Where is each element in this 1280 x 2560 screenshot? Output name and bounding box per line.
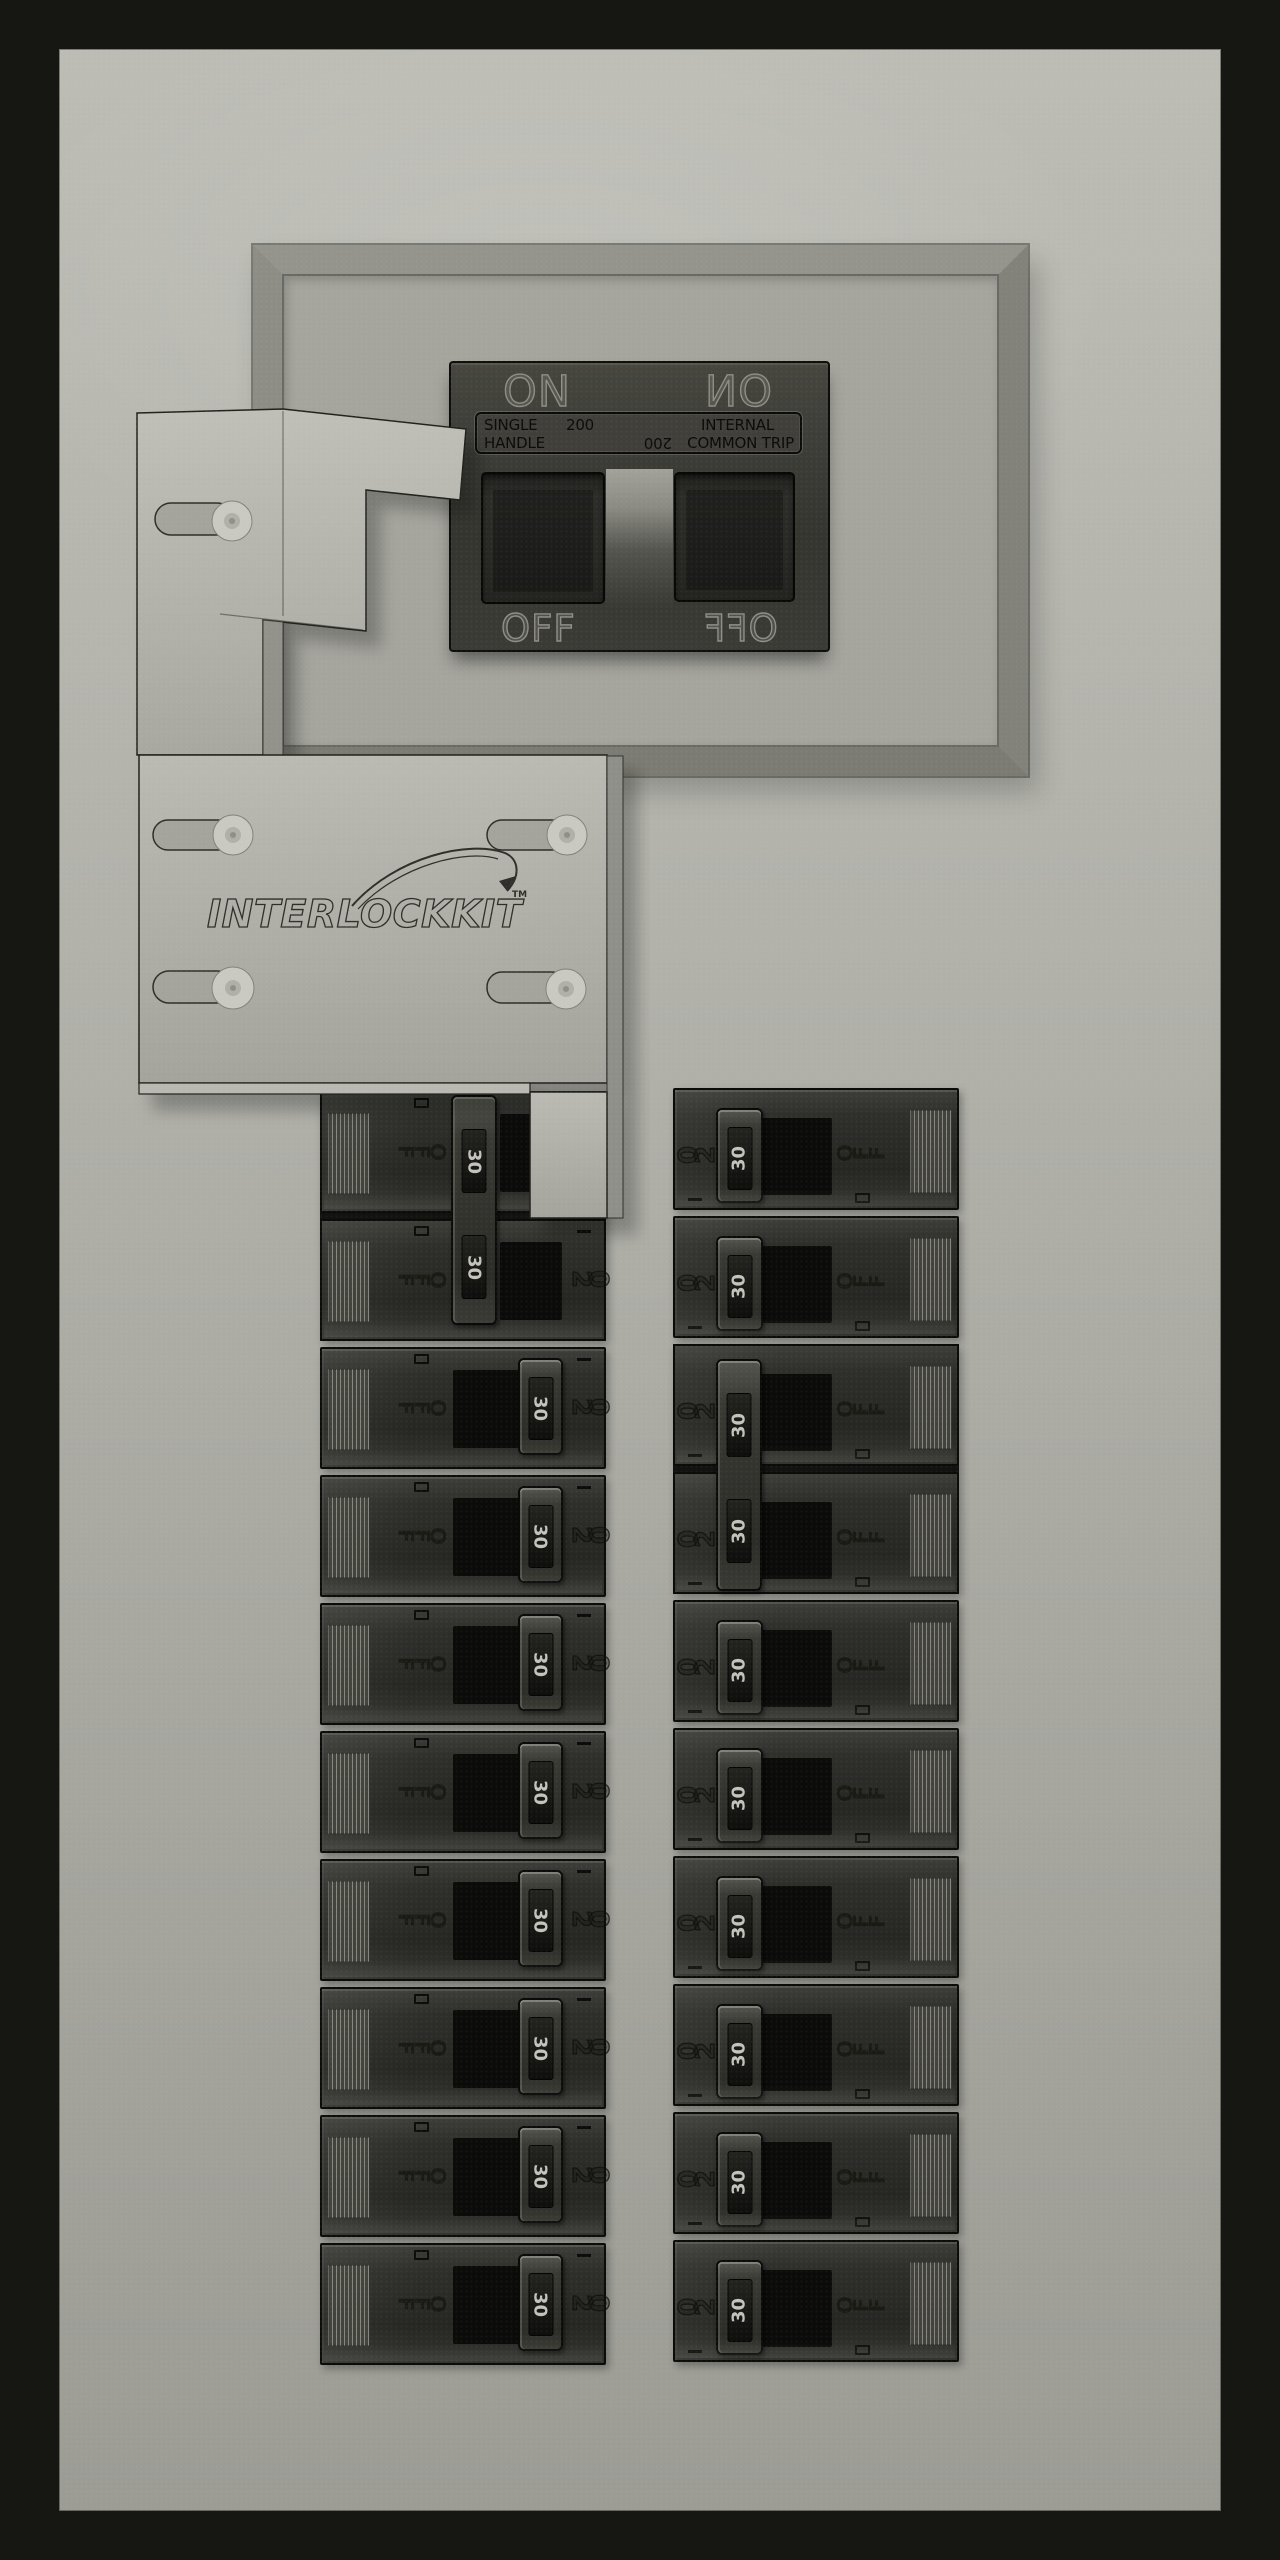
handle-center-piece [606, 469, 673, 609]
molded-glyph: O [425, 2169, 451, 2184]
molded-glyph: 0 [585, 1655, 611, 1671]
handle-window [761, 1502, 832, 1579]
breaker-handle[interactable]: 30 [727, 2279, 752, 2342]
molded-glyph: 0 [585, 2295, 611, 2311]
marker-dash [688, 1838, 702, 1841]
tied-handle-bezel[interactable]: 3030 [451, 1095, 497, 1325]
branch-breaker: FFO3020 [320, 2243, 606, 2365]
test-port [855, 1193, 870, 1203]
marker-dash [577, 1742, 591, 1745]
breaker-handle[interactable]: 30 [528, 1889, 553, 1952]
handle-rating: 30 [530, 1524, 551, 1549]
breaker-handle[interactable]: 30 [528, 1633, 553, 1696]
handle-window [761, 1374, 832, 1451]
two-pole-breaker-unit: OFF02OFF023030 [673, 1344, 959, 1594]
test-port [414, 1482, 429, 1492]
handle-window [761, 2014, 832, 2091]
breaker-handle[interactable]: 30 [727, 1127, 752, 1190]
breaker-body-rating: 20 [573, 2162, 606, 2188]
marker-dash [577, 1358, 591, 1361]
main-breaker-handle-right[interactable] [674, 472, 795, 602]
handle-rating: 30 [530, 2036, 551, 2061]
main-breaker-handle-left[interactable] [481, 472, 605, 604]
test-port [855, 1449, 870, 1459]
marker-dash [688, 2222, 702, 2225]
marker-dash [688, 2350, 702, 2353]
test-port [414, 1866, 429, 1876]
molded-glyph: 2 [693, 1147, 719, 1163]
breaker-body-rating: 02 [681, 2166, 714, 2192]
marker-dash [577, 2254, 591, 2257]
warning-text-label [328, 1241, 370, 1322]
breaker-handle[interactable]: 30 [727, 1499, 752, 1563]
branch-breaker: FFO3020 [320, 1475, 606, 1597]
breaker-off-label: FFO [398, 2291, 445, 2317]
molded-glyph: O [425, 1273, 451, 1288]
breaker-handle-bezel[interactable]: 30 [716, 2132, 763, 2227]
handle-rating: 30 [729, 1658, 750, 1683]
molded-glyph: 2 [693, 1915, 719, 1931]
branch-breaker: OFF3002 [673, 1216, 959, 1338]
warning-text-label [328, 2137, 370, 2218]
handle-rating: 30 [530, 2292, 551, 2317]
marker-dash [688, 1326, 702, 1329]
breaker-body-rating: 20 [573, 1522, 606, 1548]
breaker-handle-bezel[interactable]: 30 [716, 2260, 763, 2355]
molded-glyph: F [865, 1146, 891, 1161]
breaker-off-label: FFO [398, 1651, 445, 1677]
breaker-handle-bezel[interactable]: 30 [518, 1614, 563, 1711]
breaker-body-rating: 20 [573, 1650, 606, 1676]
warning-text-label [910, 1238, 952, 1321]
breaker-off-label: FFO [398, 2035, 445, 2061]
test-port [414, 2122, 429, 2132]
breaker-body-rating: 20 [573, 2290, 606, 2316]
handle-rating: 30 [729, 1146, 750, 1171]
handle-rating: 30 [729, 2170, 750, 2195]
molded-glyph: O [425, 1785, 451, 1800]
main-breaker: ON ON SINGLE HANDLE 200 200 INTERNAL COM… [449, 361, 830, 652]
breaker-body-rating: 20 [573, 2034, 606, 2060]
breaker-handle-bezel[interactable]: 30 [716, 1620, 763, 1715]
handle-rating: 30 [464, 1148, 485, 1173]
breaker-off-label: OFF [838, 2036, 885, 2062]
handle-window [761, 1630, 832, 1707]
warning-text-label [328, 1113, 370, 1194]
molded-glyph: 0 [585, 1783, 611, 1799]
branch-breaker: OFF3002 [673, 1728, 959, 1850]
breaker-body-rating: 02 [681, 1398, 714, 1424]
breaker-handle[interactable]: 30 [727, 1393, 752, 1457]
main-breaker-label-plate: SINGLE HANDLE 200 200 INTERNAL COMMON TR… [475, 412, 802, 454]
breaker-off-label: OFF [838, 1652, 885, 1678]
breaker-off-label: OFF [838, 1396, 885, 1422]
breaker-handle-bezel[interactable]: 30 [518, 2254, 563, 2351]
warning-text-label [328, 1369, 370, 1450]
breaker-handle-bezel[interactable]: 30 [716, 2004, 763, 2099]
handle-window [761, 1758, 832, 1835]
warning-text-label [910, 1366, 952, 1449]
handle-window [500, 1242, 562, 1320]
branch-breaker: FFO3020 [320, 1347, 606, 1469]
main-rating: 200 [566, 416, 594, 434]
branch-breaker: OFF3002 [673, 1600, 959, 1722]
molded-glyph: F [865, 1658, 891, 1673]
handle-rating: 30 [530, 1396, 551, 1421]
test-port [414, 2250, 429, 2260]
handle-window [453, 1498, 519, 1576]
main-off-label-mirrored: OFF [703, 607, 778, 650]
handle-window [500, 1114, 562, 1192]
marker-dash [688, 1710, 702, 1713]
main-on-label: ON [503, 367, 571, 417]
molded-glyph: F [865, 1786, 891, 1801]
warning-text-label [910, 1110, 952, 1193]
marker-dash [577, 2126, 591, 2129]
test-port [855, 1833, 870, 1843]
warning-text-label [328, 2009, 370, 2090]
branch-breaker: OFF3002 [673, 2112, 959, 2234]
molded-glyph: O [425, 1145, 451, 1160]
breaker-handle[interactable]: 30 [528, 2017, 553, 2080]
handle-window [453, 1626, 519, 1704]
breaker-off-label: FFO [398, 1523, 445, 1549]
label-single: SINGLE [484, 416, 537, 434]
test-port [414, 1610, 429, 1620]
test-port [855, 2217, 870, 2227]
branch-breaker: FFO3020 [320, 1987, 606, 2109]
test-port [855, 1961, 870, 1971]
molded-glyph: 2 [693, 1787, 719, 1803]
molded-glyph: 2 [693, 1275, 719, 1291]
molded-glyph: 2 [693, 1659, 719, 1675]
breaker-off-label: OFF [838, 2164, 885, 2190]
test-port [414, 1994, 429, 2004]
handle-rating: 30 [530, 1780, 551, 1805]
handle-window [761, 2142, 832, 2219]
breaker-handle[interactable]: 30 [727, 1639, 752, 1702]
handle-window [453, 2266, 519, 2344]
breaker-off-label: OFF [838, 2292, 885, 2318]
test-port [414, 1226, 429, 1236]
handle-rating: 30 [530, 1652, 551, 1677]
marker-dash [688, 2094, 702, 2097]
molded-glyph: 0 [585, 1271, 611, 1287]
breaker-handle-bezel[interactable]: 30 [518, 2126, 563, 2223]
marker-dash [577, 1230, 591, 1233]
marker-dash [688, 1582, 702, 1585]
warning-text-label [328, 1625, 370, 1706]
breaker-body-rating: 02 [681, 2038, 714, 2064]
molded-glyph: O [425, 1657, 451, 1672]
main-rating-rotated: 200 [644, 434, 672, 452]
breaker-body-rating: 02 [681, 1142, 714, 1168]
branch-breaker: OFF3002 [673, 1088, 959, 1210]
breaker-handle-bezel[interactable]: 30 [716, 1108, 763, 1203]
breaker-handle-bezel[interactable]: 30 [518, 1870, 563, 1967]
handle-rating: 30 [530, 1908, 551, 1933]
breaker-handle-bezel[interactable]: 30 [518, 1486, 563, 1583]
molded-glyph: F [865, 1530, 891, 1545]
marker-dash [688, 1198, 702, 1201]
handle-rating: 30 [729, 1518, 750, 1543]
branch-breaker: FFO3020 [320, 1859, 606, 1981]
handle-window [761, 2270, 832, 2347]
breaker-body-rating: 02 [681, 1526, 714, 1552]
breaker-handle[interactable]: 30 [727, 2023, 752, 2086]
test-port [414, 1098, 429, 1108]
branch-breaker: FFO3020 [320, 2115, 606, 2237]
handle-window [761, 1118, 832, 1195]
branch-breaker: OFF3002 [673, 1984, 959, 2106]
breaker-off-label: FFO [398, 1139, 445, 1165]
molded-glyph: 0 [585, 1527, 611, 1543]
breaker-off-label: FFO [398, 1907, 445, 1933]
handle-window [761, 1246, 832, 1323]
breaker-off-label: OFF [838, 1908, 885, 1934]
breaker-handle-bezel[interactable]: 30 [716, 1236, 763, 1331]
test-port [855, 2089, 870, 2099]
breaker-handle[interactable]: 30 [528, 1377, 553, 1440]
warning-text-label [910, 2006, 952, 2089]
marker-dash [577, 1102, 591, 1105]
marker-dash [577, 1870, 591, 1873]
test-port [855, 2345, 870, 2355]
breaker-body-rating: 20 [573, 1906, 606, 1932]
breaker-column-left: FFO20FFO203030FFO3020FFO3020FFO3020FFO30… [320, 1091, 606, 2371]
handle-rating: 30 [729, 2298, 750, 2323]
molded-glyph: 0 [585, 1399, 611, 1415]
handle-window [453, 1370, 519, 1448]
branch-breaker: FFO3020 [320, 1731, 606, 1853]
marker-dash [577, 1486, 591, 1489]
breaker-handle[interactable]: 30 [528, 2273, 553, 2336]
molded-glyph: F [865, 1914, 891, 1929]
breaker-off-label: OFF [838, 1140, 885, 1166]
handle-window [453, 1882, 519, 1960]
breaker-handle[interactable]: 30 [462, 1235, 487, 1299]
handle-rating: 30 [729, 2042, 750, 2067]
branch-breaker: OFF3002 [673, 1856, 959, 1978]
warning-text-label [328, 1881, 370, 1962]
breaker-body-rating: 02 [681, 2294, 714, 2320]
handle-window [761, 1886, 832, 1963]
main-off-label: OFF [501, 607, 576, 650]
warning-text-label [910, 2262, 952, 2345]
warning-text-label [910, 1622, 952, 1705]
branch-breaker: FFO3020 [320, 1603, 606, 1725]
breaker-handle[interactable]: 30 [528, 1505, 553, 1568]
handle-rating: 30 [729, 1274, 750, 1299]
warning-text-label [910, 2134, 952, 2217]
breaker-handle[interactable]: 30 [727, 1767, 752, 1830]
breaker-off-label: OFF [838, 1268, 885, 1294]
breaker-handle-bezel[interactable]: 30 [518, 1358, 563, 1455]
handle-rating: 30 [729, 1412, 750, 1437]
breaker-handle[interactable]: 30 [727, 1255, 752, 1318]
molded-glyph: O [425, 2297, 451, 2312]
test-port [414, 1354, 429, 1364]
test-port [855, 1321, 870, 1331]
breaker-column-right: OFF3002OFF3002OFF02OFF023030OFF3002OFF30… [673, 1088, 959, 2368]
breaker-handle[interactable]: 30 [727, 2151, 752, 2214]
warning-text-label [910, 1750, 952, 1833]
warning-text-label [910, 1878, 952, 1961]
warning-text-label [328, 1497, 370, 1578]
molded-glyph: F [865, 2170, 891, 2185]
breaker-body-rating: 20 [573, 1266, 606, 1292]
handle-rating: 30 [729, 1786, 750, 1811]
handle-window [453, 1754, 519, 1832]
label-common-trip: COMMON TRIP [687, 434, 794, 452]
breaker-handle[interactable]: 30 [528, 1761, 553, 1824]
breaker-handle[interactable]: 30 [462, 1129, 487, 1193]
label-handle: HANDLE [484, 434, 545, 452]
two-pole-breaker-unit: FFO20FFO203030 [320, 1091, 606, 1341]
breaker-handle-bezel[interactable]: 30 [518, 1742, 563, 1839]
molded-glyph: 0 [585, 1911, 611, 1927]
marker-dash [577, 1998, 591, 2001]
breaker-handle-bezel[interactable]: 30 [716, 1876, 763, 1971]
breaker-handle-bezel[interactable]: 30 [716, 1748, 763, 1843]
handle-rating: 30 [530, 2164, 551, 2189]
label-internal: INTERNAL [701, 416, 774, 434]
molded-glyph: O [425, 1401, 451, 1416]
test-port [855, 1705, 870, 1715]
breaker-body-rating: 02 [681, 1654, 714, 1680]
molded-glyph: 0 [585, 2039, 611, 2055]
molded-glyph: 0 [585, 2167, 611, 2183]
handle-window [453, 2010, 519, 2088]
breaker-off-label: FFO [398, 1267, 445, 1293]
breaker-body-rating: 20 [573, 1394, 606, 1420]
breaker-off-label: FFO [398, 1395, 445, 1421]
breaker-handle[interactable]: 30 [727, 1895, 752, 1958]
handle-window [453, 2138, 519, 2216]
marker-dash [577, 1614, 591, 1617]
molded-glyph: F [865, 1402, 891, 1417]
warning-text-label [910, 1494, 952, 1577]
molded-glyph: 2 [693, 2043, 719, 2059]
breaker-body-rating: 20 [573, 1778, 606, 1804]
breaker-off-label: FFO [398, 2163, 445, 2189]
molded-glyph: F [865, 2042, 891, 2057]
marker-dash [688, 1454, 702, 1457]
breaker-body-rating: 02 [681, 1270, 714, 1296]
handle-rating: 30 [729, 1914, 750, 1939]
warning-text-label [328, 1753, 370, 1834]
test-port [414, 1738, 429, 1748]
breaker-handle[interactable]: 30 [528, 2145, 553, 2208]
breaker-body-rating: 02 [681, 1782, 714, 1808]
tied-handle-bezel[interactable]: 3030 [716, 1359, 762, 1591]
marker-dash [688, 1966, 702, 1969]
handle-rating: 30 [464, 1254, 485, 1279]
molded-glyph: 0 [585, 1143, 611, 1159]
breaker-handle-bezel[interactable]: 30 [518, 1998, 563, 2095]
molded-glyph: O [425, 2041, 451, 2056]
breaker-off-label: OFF [838, 1780, 885, 1806]
main-on-label-mirrored: ON [704, 367, 772, 417]
molded-glyph: 2 [693, 2299, 719, 2315]
test-port [855, 1577, 870, 1587]
breaker-off-label: OFF [838, 1524, 885, 1550]
warning-text-label [328, 2265, 370, 2346]
molded-glyph: O [425, 1529, 451, 1544]
molded-glyph: F [865, 1274, 891, 1289]
breaker-body-rating: 02 [681, 1910, 714, 1936]
breaker-off-label: FFO [398, 1779, 445, 1805]
branch-breaker: OFF3002 [673, 2240, 959, 2362]
molded-glyph: 2 [693, 2171, 719, 2187]
molded-glyph: F [865, 2298, 891, 2313]
breaker-body-rating: 20 [573, 1138, 606, 1164]
molded-glyph: O [425, 1913, 451, 1928]
breaker-panel-render: ON ON SINGLE HANDLE 200 200 INTERNAL COM… [0, 0, 1280, 2560]
